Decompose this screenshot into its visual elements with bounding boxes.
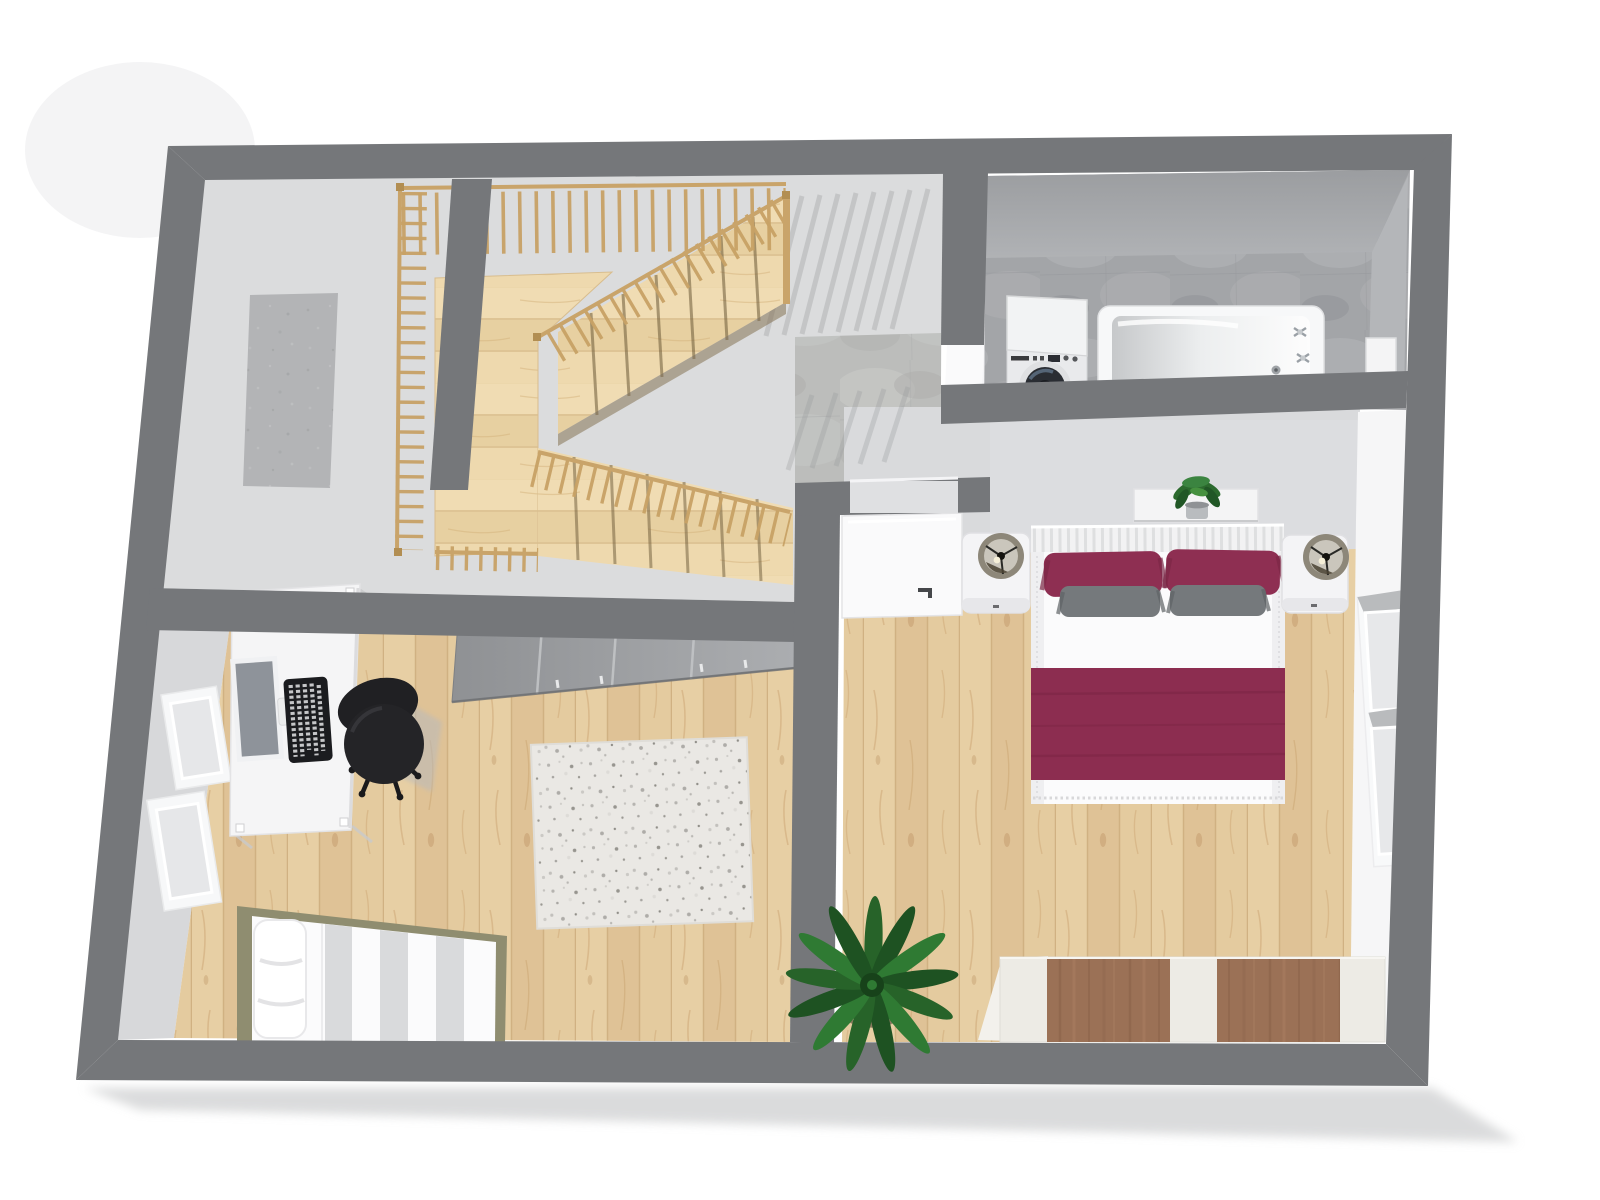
railing-post-ne [782, 191, 790, 199]
bathroom-north-wall-face [986, 170, 1410, 258]
railing-bottom-rail [435, 552, 538, 554]
railing-post-sw [394, 548, 402, 556]
double-bed [1031, 525, 1285, 804]
office-rug [531, 737, 753, 928]
floorplan-render [0, 0, 1600, 1200]
wardrobe-door-left [1047, 957, 1170, 1042]
bedroom-wardrobe [978, 956, 1385, 1042]
single-bed-pillow [254, 920, 306, 1038]
wall-south [76, 1040, 1428, 1086]
chair-seat [344, 704, 424, 784]
railing-right-post [783, 194, 790, 304]
railing-post-nw [396, 183, 404, 191]
pillow-gray-right [1170, 585, 1266, 616]
wardrobe-door-right [1217, 957, 1340, 1042]
bedroom-doorway-gap [850, 481, 958, 513]
wall-bathroom-west [941, 172, 988, 345]
pillow-gray-left [1060, 586, 1160, 617]
striped-duvet [322, 924, 464, 1042]
nightstand-left [962, 533, 1030, 613]
washer-control-strip [1011, 356, 1029, 361]
keyboard [283, 676, 333, 763]
nightstand-right [1282, 534, 1349, 613]
railing-post-mid [533, 333, 541, 341]
corridor-floor [243, 293, 338, 488]
washer-display [1048, 355, 1060, 362]
